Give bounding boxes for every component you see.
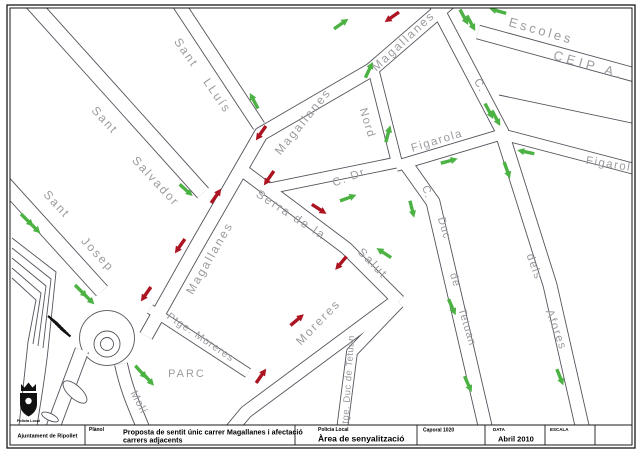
org-name: Ajuntament de Ripollet bbox=[18, 434, 78, 440]
street-label: Magallanes bbox=[369, 8, 438, 74]
direction-arrow-green bbox=[406, 200, 417, 219]
shield-detail bbox=[25, 398, 31, 404]
street-label: Sant bbox=[89, 104, 122, 137]
street-label: PARC bbox=[168, 368, 206, 380]
street-label: CEIP A. C bbox=[552, 47, 640, 87]
plan-label: Plànol bbox=[89, 427, 105, 433]
street-label: Ptge. Duc de Tetuan bbox=[340, 335, 358, 431]
school-block-edge bbox=[499, 95, 640, 126]
direction-arrow-red bbox=[138, 285, 154, 303]
street-dels-afores-fill bbox=[502, 133, 583, 430]
direction-arrow-red bbox=[383, 9, 401, 25]
plan-title-line2: carrers adjacents bbox=[123, 436, 183, 445]
street-label: Serra de la bbox=[254, 187, 329, 243]
street-nord-fill bbox=[373, 68, 397, 163]
street-c-dr-fill bbox=[262, 162, 399, 190]
crosswalk-hatch bbox=[48, 316, 71, 337]
author: Caporal 1020 bbox=[423, 428, 454, 434]
street-sant-salvador-fill bbox=[24, 0, 203, 193]
dept-label: Policia Local bbox=[318, 427, 349, 433]
plan-sheet: SantLLuísSantSalvadorSantJosepMagallanes… bbox=[0, 0, 640, 452]
scale-label: ESCALA bbox=[550, 427, 569, 432]
street-labels: SantLLuísSantSalvadorSantJosepMagallanes… bbox=[41, 8, 640, 431]
direction-arrow-green bbox=[140, 370, 157, 388]
street-duc-de-tetuan-fill bbox=[406, 164, 486, 430]
terrace-line bbox=[12, 268, 41, 344]
direction-arrow-red bbox=[332, 254, 349, 272]
date-label: DATA bbox=[493, 427, 506, 432]
street-label: Nord bbox=[357, 107, 378, 140]
dept-title: Àrea de senyalització bbox=[318, 434, 404, 444]
direction-arrow-green bbox=[339, 192, 358, 205]
corner-block-edge bbox=[601, 0, 640, 13]
street-label: Sant bbox=[41, 188, 74, 221]
direction-arrow-red bbox=[288, 311, 306, 328]
street-label: Ptge. Moreres bbox=[165, 310, 237, 364]
map-canvas: SantLLuísSantSalvadorSantJosepMagallanes… bbox=[0, 0, 640, 431]
direction-arrow-green bbox=[488, 5, 507, 17]
date-value: Abril 2010 bbox=[498, 435, 534, 444]
terrace-line bbox=[12, 278, 36, 342]
direction-arrow-red bbox=[253, 367, 269, 385]
shield-icon bbox=[20, 393, 37, 417]
crest-caption: Policia Local bbox=[17, 419, 40, 423]
direction-arrow-green bbox=[332, 16, 350, 32]
title-block: Ajuntament de Ripollet Plànol Proposta d… bbox=[10, 425, 632, 445]
